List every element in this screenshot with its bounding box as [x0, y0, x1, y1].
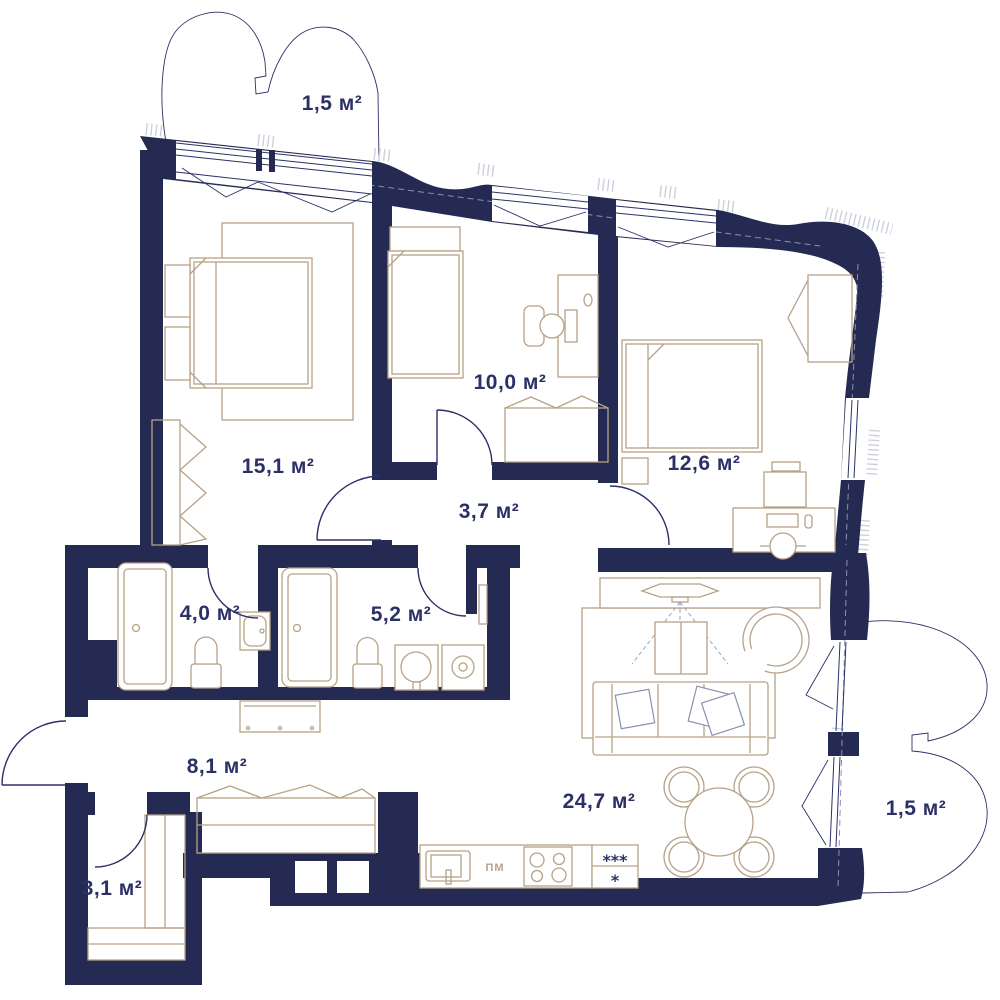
- living-kitchen-furniture: [582, 578, 820, 877]
- bedroom-kids-furniture: [388, 227, 608, 462]
- bedroom-main-furniture: [152, 223, 353, 545]
- room-label-balcony-right: 1,5 м²: [886, 797, 947, 820]
- room-label-bathroom-small: 4,0 м²: [180, 602, 241, 625]
- room-label-wardrobe-closet: 3,1 м²: [82, 877, 143, 900]
- kitchen-appliances: ПМ *** *: [420, 845, 638, 890]
- floor-plan: ПМ *** * 1,5 м² 15,1 м² 10,0 м² 12,6 м² …: [0, 0, 1000, 1000]
- room-label-bedroom-main: 15,1 м²: [242, 455, 315, 478]
- balcony-right-outline: [862, 621, 987, 893]
- bedroom-second-furniture: [622, 275, 852, 559]
- dishwasher-label: ПМ: [485, 862, 504, 874]
- fridge-freezer-stars: ***: [602, 851, 628, 870]
- room-label-bathroom-large: 5,2 м²: [371, 603, 432, 626]
- room-label-bedroom-kids: 10,0 м²: [474, 371, 547, 394]
- room-label-balcony-top: 1,5 м²: [302, 92, 363, 115]
- fridge-star: *: [611, 871, 620, 890]
- room-label-hall-inner: 3,7 м²: [459, 500, 520, 523]
- balcony-top-outline: [162, 12, 379, 161]
- bathroom-small-fixtures: [118, 563, 270, 690]
- room-label-living-kitchen: 24,7 м²: [563, 790, 636, 813]
- bathroom-large-fixtures: [282, 568, 487, 690]
- room-label-hallway-entry: 8,1 м²: [187, 755, 248, 778]
- room-label-bedroom-second: 12,6 м²: [668, 452, 741, 475]
